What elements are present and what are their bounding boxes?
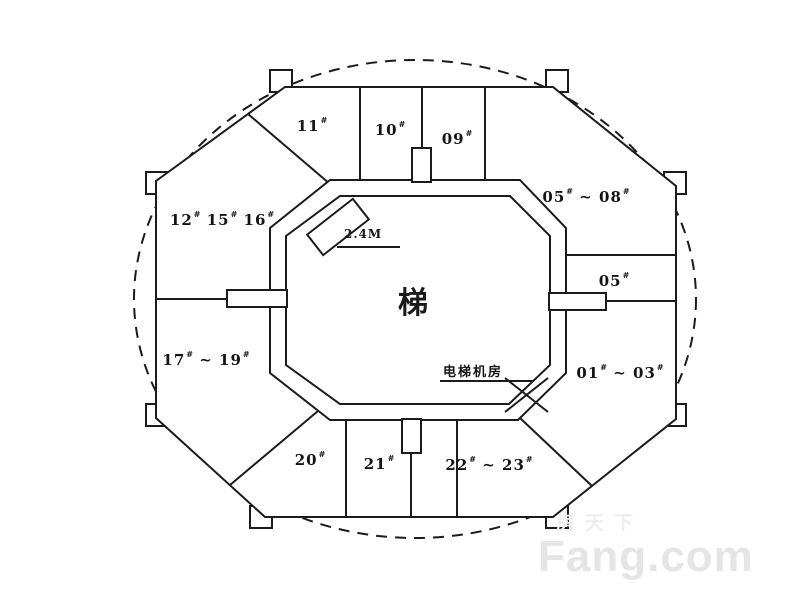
unit-label-01-03: 01# ~ 03# [576,364,663,382]
unit-label-12-15-16: 12# 15# 16# [170,211,274,229]
unit-label-10: 10# [375,121,406,139]
door-bottom [402,419,421,453]
door-top [412,148,431,182]
unit-label-05: 05# [599,272,630,290]
door-left [227,290,287,307]
unit-label-22-23: 22# ~ 23# [445,456,532,474]
core-stairs-label: 梯 [398,278,428,322]
door-right [549,293,606,310]
unit-label-09: 09# [442,130,473,148]
elevator-room-label: 电梯机房 [443,361,503,380]
floor-plan: 11# 10# 09# 05# ~ 08# 05# 01# ~ 03# 12# … [0,0,800,600]
watermark: 房天下 Fang.com [538,508,800,579]
unit-label-21: 21# [364,455,395,473]
watermark-en-text: Fang.com [538,535,800,579]
watermark-cn-text: 房天下 [538,508,800,535]
unit-label-20: 20# [295,451,326,469]
unit-label-05-08: 05# ~ 08# [542,188,629,206]
ramp-dimension-label: 2.4M [344,227,382,241]
unit-label-11: 11# [297,117,328,135]
unit-label-17-19: 17# ~ 19# [162,351,249,369]
